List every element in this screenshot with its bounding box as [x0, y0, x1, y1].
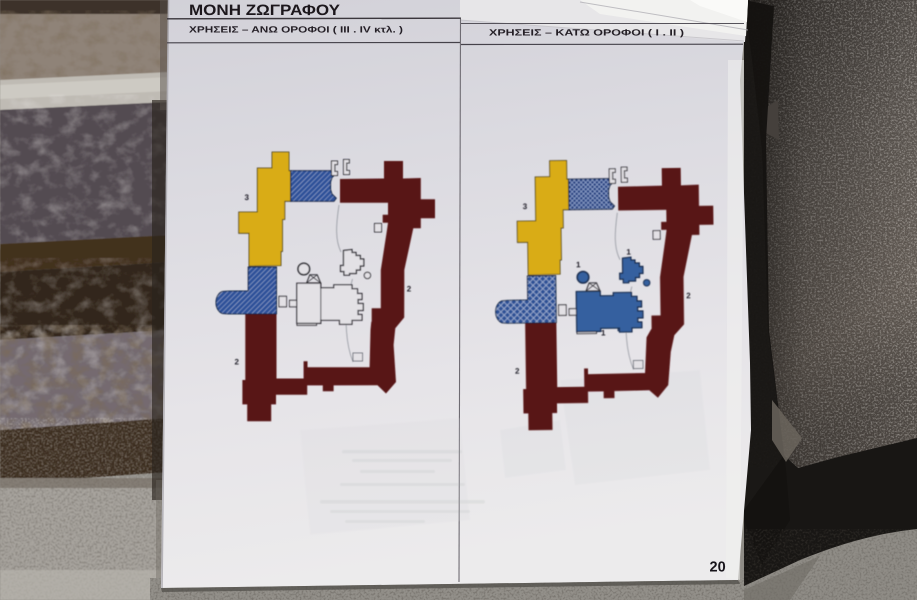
svg-text:2: 2	[235, 358, 240, 367]
svg-text:3: 3	[523, 202, 528, 211]
svg-text:20: 20	[710, 560, 726, 576]
svg-text:2: 2	[407, 285, 412, 294]
svg-text:1: 1	[601, 328, 606, 337]
svg-text:3: 3	[245, 193, 250, 202]
svg-text:1: 1	[626, 248, 631, 257]
svg-text:2: 2	[515, 367, 520, 376]
svg-text:ΧΡΗΣΕΙΣ – ΚΑΤΩ ΟΡΟΦΟΙ ( Ι . ΙΙ: ΧΡΗΣΕΙΣ – ΚΑΤΩ ΟΡΟΦΟΙ ( Ι . ΙΙ )	[489, 28, 684, 38]
svg-text:1: 1	[576, 260, 581, 269]
svg-text:ΧΡΗΣΕΙΣ – ΑΝΩ ΟΡΟΦΟΙ ( ΙΙΙ . Ι: ΧΡΗΣΕΙΣ – ΑΝΩ ΟΡΟΦΟΙ ( ΙΙΙ . ΙV κτλ. )	[189, 25, 403, 35]
svg-text:ΜΟΝΗ ΖΩΓΡΑΦΟΥ: ΜΟΝΗ ΖΩΓΡΑΦΟΥ	[189, 2, 340, 19]
svg-text:2: 2	[686, 291, 691, 300]
